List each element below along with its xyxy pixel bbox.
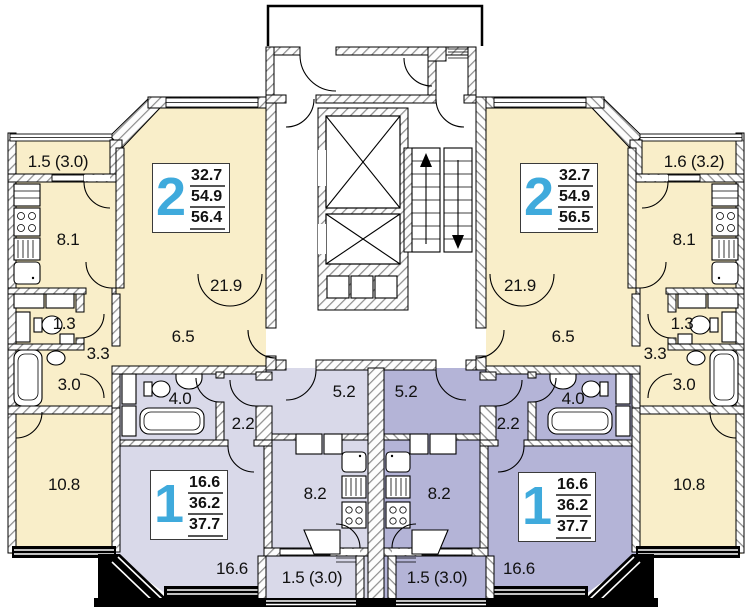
balcony1-side-wall [258, 556, 266, 600]
closet-box [122, 374, 136, 404]
column-side-wall [112, 372, 120, 408]
room-label-kitchen-apt1-left: 8.2 [304, 484, 327, 504]
apt-1-left-badge-number: 1 [154, 480, 184, 530]
kitchen-fixtures [14, 184, 40, 284]
closet-box [122, 406, 136, 436]
corridor-wall [276, 360, 286, 370]
room-label-balcony-top-left: 1.5 (3.0) [28, 152, 89, 172]
column [428, 47, 446, 61]
service-box [327, 276, 349, 298]
living-top-wall-2 [254, 440, 272, 446]
room-label-balcony-apt1-left: 1.5 (3.0) [282, 568, 343, 588]
apt-2-left-badge-area-1: 54.9 [190, 187, 225, 208]
wc-bath-wall [8, 344, 84, 350]
kitchen82-top-stub [272, 434, 296, 440]
elevator-door-2 [318, 224, 326, 254]
kitchen-bottom-wall [8, 288, 86, 294]
apt-2-right-badge-areas: 32.754.956.5 [558, 166, 593, 230]
room-label-hall-left: 6.5 [172, 327, 195, 347]
apt-1-right-badge-number: 1 [522, 482, 552, 532]
room-label-kitchen-apt1-right: 8.2 [428, 484, 451, 504]
lobby-wall-2 [316, 95, 436, 103]
balcony-door-opening [84, 175, 110, 181]
bath-bedroom-wall [8, 406, 116, 414]
room-label-bath-apt1-left: 4.0 [169, 389, 192, 409]
toilet-icon [152, 381, 170, 397]
hall52-wall [256, 372, 272, 380]
bath4-wall-2 [216, 402, 224, 440]
room-label-corridor-right: 3.3 [644, 344, 667, 364]
apt-1-left-badge-areas: 16.636.237.7 [188, 473, 223, 537]
apt-2-left-badge-area-0: 32.7 [190, 166, 225, 187]
corridor-wall-3 [466, 360, 476, 370]
bedroom-side-wall [112, 406, 120, 552]
kitchen82-wall [264, 446, 272, 556]
stove-icon [14, 208, 40, 236]
sink-icon [342, 452, 366, 472]
service-box [375, 276, 397, 298]
apt-1-right-badge-areas: 16.636.237.7 [556, 475, 591, 539]
stove-icon [342, 502, 366, 528]
core-side-wall [266, 97, 276, 328]
apt-1-right-badge-area-1: 36.2 [556, 496, 591, 517]
toilet-icon [34, 318, 42, 332]
room-label-hall-apt1-right: 5.2 [395, 382, 418, 402]
room-label-hall-apt1-left: 5.2 [333, 382, 356, 402]
porch-outline [268, 6, 482, 46]
apt-2-left-badge-area-2: 56.4 [190, 208, 225, 229]
living-window-band [164, 586, 264, 598]
room-label-kitchen-left: 8.1 [57, 230, 80, 250]
apt-1-right-badge-area-2: 37.7 [556, 517, 591, 538]
room-label-wc-right: 1.3 [671, 314, 694, 334]
apt-2-right-badge: 232.754.956.5 [520, 163, 598, 233]
room-label-corridor-left: 3.3 [87, 344, 110, 364]
wall-stub [112, 288, 116, 294]
apt-2-right-badge-number: 2 [524, 173, 554, 223]
apt-2-right-badge-area-2: 56.5 [558, 208, 593, 229]
room-label-bedroom-left: 10.8 [48, 475, 80, 495]
floor-plan-drawing [0, 0, 752, 607]
room-label-living-apt1-left: 16.6 [216, 559, 248, 579]
sink-icon [47, 351, 65, 365]
apt-1-left-badge: 116.636.237.7 [150, 470, 228, 540]
center-dividing-wall [368, 368, 384, 606]
kitchen-counter [324, 434, 342, 454]
elevator-door-1 [318, 150, 326, 186]
hall52-wall-2 [256, 406, 272, 440]
living-top-wall [120, 440, 228, 446]
apt-2-left-badge-number: 2 [156, 173, 186, 223]
apt-1-left-badge-area-2: 37.7 [188, 515, 223, 536]
service-box [351, 276, 373, 298]
room-label-bedroom-right: 10.8 [673, 475, 705, 495]
apt-2-right-badge-area-0: 32.7 [558, 166, 593, 187]
room-label-bath-right: 3.0 [673, 375, 696, 395]
stair-wall [404, 148, 412, 252]
room-label-living-apt1-right: 16.6 [503, 559, 535, 579]
wc-wall [76, 294, 84, 312]
kitchen-counter [296, 434, 322, 454]
room-label-corridor-apt1-left: 2.2 [232, 414, 255, 434]
apt-2-left-badge: 232.754.956.4 [152, 163, 230, 233]
room-label-balcony-apt1-right: 1.5 (3.0) [407, 568, 468, 588]
kitchen-living-wall [116, 148, 124, 288]
apt-1-left-badge-area-1: 36.2 [188, 494, 223, 515]
room-label-living-right: 21.9 [504, 276, 536, 296]
apt-1-left-badge-area-0: 16.6 [188, 473, 223, 494]
corridor-hall-wall [112, 294, 120, 346]
lobby-wall [266, 95, 286, 103]
apt-2-left-badge-areas: 32.754.956.4 [190, 166, 225, 230]
vestibule-wall-top [274, 47, 300, 55]
bottom-facade-band [94, 598, 658, 607]
room-label-corridor-apt1-right: 2.2 [497, 414, 520, 434]
window-kitchen-balcony [52, 175, 84, 181]
hall-bottom-wall [112, 366, 266, 374]
room-label-hall-right: 6.5 [552, 327, 575, 347]
kitchen82-top-stub-2 [342, 434, 368, 440]
apt-1-right-badge-area-0: 16.6 [556, 475, 591, 496]
lobby-wall-3 [464, 95, 476, 103]
balcony1-side-wall-2 [356, 556, 364, 600]
floor-plan: 1.5 (3.0)8.121.96.51.33.33.010.84.02.25.… [0, 0, 752, 607]
room-label-bath-apt1-right: 4.0 [562, 389, 585, 409]
room-label-wc-left: 1.3 [53, 314, 76, 334]
apt-1-right-badge: 116.636.237.7 [518, 472, 596, 542]
room-label-kitchen-right: 8.1 [673, 230, 696, 250]
sink-icon [14, 262, 40, 284]
room-label-bath-left: 3.0 [58, 375, 81, 395]
bath4-wall [216, 372, 224, 378]
apt-2-right-badge-area-1: 54.9 [558, 187, 593, 208]
vestibule-wall-top-2 [336, 47, 476, 55]
room-label-living-left: 21.9 [210, 276, 242, 296]
room-label-balcony-top-right: 1.6 (3.2) [664, 152, 725, 172]
